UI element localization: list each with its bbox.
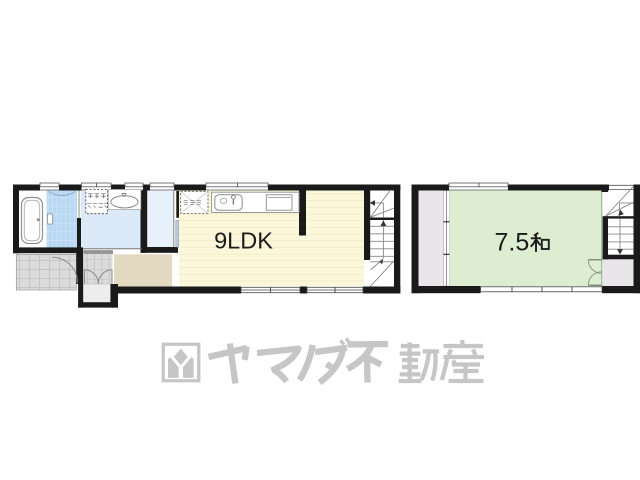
svg-text:7.5: 7.5 <box>495 229 530 257</box>
svg-text:9LDK: 9LDK <box>214 228 273 254</box>
